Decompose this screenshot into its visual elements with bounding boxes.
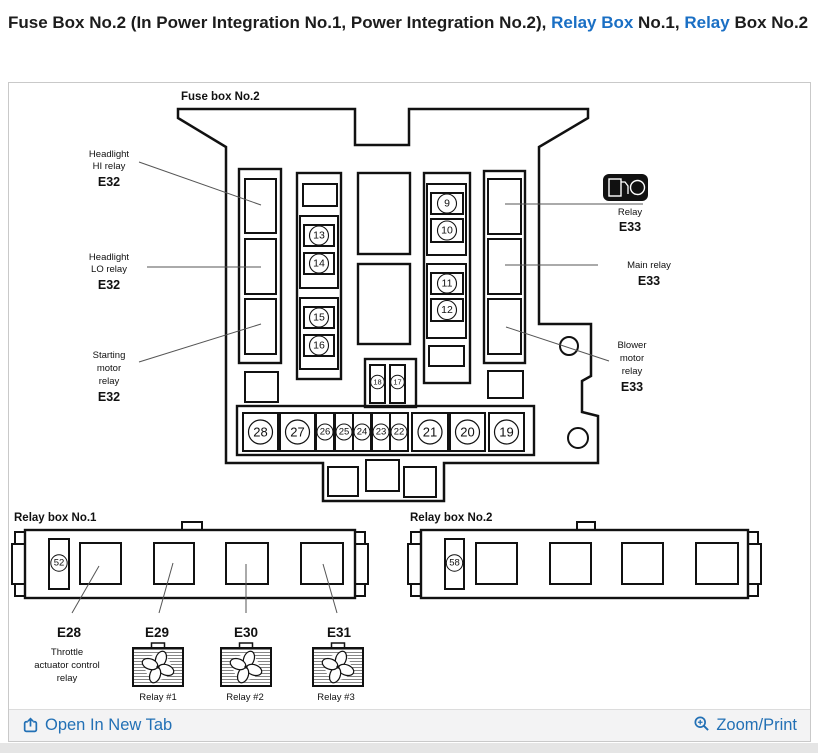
label-fuel-pump-relay: Relay E33	[618, 207, 643, 234]
relaybox-no2: Relay box No.2 58	[408, 512, 761, 598]
fuse-column-13-16: 13 14 15 16	[297, 173, 341, 379]
label-line: relay	[622, 366, 643, 377]
fuse-number: 10	[441, 225, 453, 237]
label-line: Headlight	[89, 252, 129, 263]
fuse-number: 19	[499, 425, 513, 440]
relay-code: E32	[98, 175, 120, 189]
slot	[488, 371, 523, 398]
fuse-number: 25	[339, 427, 350, 438]
open-in-new-tab-label: Open In New Tab	[45, 716, 172, 735]
label-line: motor	[620, 353, 644, 364]
relay-slot	[550, 543, 591, 584]
pointer-line	[323, 564, 337, 613]
fuse-number: 20	[460, 425, 474, 440]
label-main-relay: Main relay E33	[627, 260, 671, 288]
starting-motor-relay-slot	[245, 299, 276, 354]
open-in-new-tab-link[interactable]: Open In New Tab	[22, 716, 172, 735]
connector-block	[358, 264, 410, 344]
label-line: Main relay	[627, 260, 671, 271]
fuse-number: 18	[373, 378, 381, 387]
fuse-group	[300, 298, 338, 369]
fan-caption: Relay #1	[139, 692, 177, 703]
e32-relay-column	[239, 169, 281, 402]
fuel-pump-park-relay-icon: F P	[603, 174, 648, 201]
label-line: actuator control	[34, 660, 99, 671]
slot	[303, 184, 337, 206]
fuse-number: 17	[393, 378, 401, 387]
relay-column-frame	[484, 171, 525, 363]
label-blower-motor-relay: Blower motor relay E33	[617, 340, 646, 394]
title-text-1: Fuse Box No.2 (In Power Integration No.1…	[8, 13, 551, 32]
e33-relay-column	[484, 171, 525, 398]
relay-code: E33	[621, 380, 643, 394]
label-line: Starting	[93, 350, 126, 361]
bottom-fuse-row: 28 27 26 25 24 23 22 21 20	[237, 406, 534, 455]
mounting-hole	[568, 428, 588, 448]
connector-block	[408, 544, 421, 584]
relaybox-body	[25, 530, 355, 598]
relaybox-no2-label: Relay box No.2	[410, 512, 492, 524]
fuse-number: 12	[441, 304, 453, 316]
radiator-fan-icon	[313, 643, 363, 686]
radiator-fan-icon	[221, 643, 271, 686]
label-line: LO relay	[91, 264, 127, 275]
tab	[182, 522, 202, 530]
label-e29-fan-relay-1: E29 Relay #1	[133, 625, 183, 703]
page-title: Fuse Box No.2 (In Power Integration No.1…	[8, 12, 814, 33]
headlight-hi-relay-slot	[245, 179, 276, 233]
footer-bar: Open In New Tab Zoom/Print	[9, 709, 810, 741]
label-line: Relay	[618, 207, 643, 218]
relay-slot	[476, 543, 517, 584]
fuse-number: 22	[394, 427, 405, 438]
relay-slot	[622, 543, 663, 584]
relay-code: E33	[619, 220, 641, 234]
relay-code: E31	[327, 625, 352, 640]
relay-slot	[226, 543, 268, 584]
relaybox-body	[421, 530, 748, 598]
connector-tab	[355, 532, 365, 544]
blower-motor-relay-slot	[488, 299, 521, 354]
fuse-number: 15	[313, 312, 325, 324]
bottom-protrusion-slots	[328, 460, 436, 497]
connector-tab	[411, 584, 421, 596]
fan-caption: Relay #2	[226, 692, 264, 703]
fuse-relay-diagram: Fuse box No.2 13 14	[9, 83, 810, 709]
connector-block	[358, 173, 410, 254]
fuse-block-18-17: 18 17	[365, 359, 416, 407]
icon-letter-p: P	[634, 183, 640, 193]
slot	[429, 346, 464, 366]
fusebox-no2: Fuse box No.2 13 14	[89, 91, 671, 501]
zoom-plus-icon	[693, 715, 710, 732]
fuse-number: 26	[320, 427, 331, 438]
relay-code: E32	[98, 278, 120, 292]
main-relay-slot	[488, 239, 521, 294]
slot	[404, 467, 436, 497]
label-e30-fan-relay-2: E30 Relay #2	[221, 625, 271, 703]
fuse-number: 52	[54, 558, 65, 569]
fuel-pump-relay-slot	[488, 179, 521, 234]
connector-block	[355, 544, 368, 584]
fuse-number: 23	[376, 427, 387, 438]
connector-block	[748, 544, 761, 584]
connector-tab	[355, 584, 365, 596]
fuse-number: 27	[290, 425, 304, 440]
label-headlight-lo-relay: Headlight LO relay E32	[89, 252, 129, 292]
label-e31-fan-relay-3: E31 Relay #3	[313, 625, 363, 703]
connector-tab	[748, 532, 758, 544]
relaybox-no1-label: Relay box No.1	[14, 512, 97, 524]
title-link-relay[interactable]: Relay	[684, 13, 729, 32]
fusebox-no2-label: Fuse box No.2	[181, 91, 260, 103]
relay-code: E33	[638, 274, 660, 288]
fuse-number: 58	[449, 558, 460, 569]
slot	[328, 467, 358, 496]
label-line: HI relay	[93, 161, 126, 172]
label-line: relay	[99, 376, 120, 387]
relay-code: E29	[145, 625, 169, 640]
zoom-print-label: Zoom/Print	[716, 716, 797, 735]
title-text-3: Box No.2	[730, 13, 808, 32]
relay-slot	[301, 543, 343, 584]
pointer-line	[159, 563, 173, 613]
radiator-fan-icon	[133, 643, 183, 686]
connector-tab	[411, 532, 421, 544]
zoom-print-link[interactable]: Zoom/Print	[693, 716, 797, 735]
fan-caption: Relay #3	[317, 692, 355, 703]
fuse-number: 16	[313, 340, 325, 352]
relay-slot	[696, 543, 738, 584]
label-line: relay	[57, 673, 78, 684]
fuse-number: 21	[423, 425, 437, 440]
connector-tab	[15, 584, 25, 596]
connector-block	[12, 544, 25, 584]
label-line: motor	[97, 363, 121, 374]
fuse-number: 28	[253, 425, 267, 440]
fuse-number: 9	[444, 198, 450, 210]
label-line: Blower	[617, 340, 646, 351]
relay-code: E30	[234, 625, 258, 640]
label-e28-throttle-relay: E28 Throttle actuator control relay	[34, 625, 99, 684]
diagram-panel: Fuse box No.2 13 14	[8, 82, 811, 742]
tab	[577, 522, 595, 530]
open-in-new-tab-icon	[22, 717, 39, 734]
relay-slot	[154, 543, 194, 584]
relay-slot	[80, 543, 121, 584]
fuse-number: 14	[313, 258, 325, 270]
relaybox-no1: Relay box No.1 52 E28 Throttle actuator …	[12, 512, 368, 703]
label-line: Throttle	[51, 647, 83, 658]
slot	[366, 460, 399, 491]
label-line: Headlight	[89, 149, 129, 160]
fuse-number: 11	[442, 278, 453, 290]
fuse-column-9-12: 9 10 11 12	[424, 173, 470, 383]
title-link-relay-box[interactable]: Relay Box	[551, 13, 633, 32]
page-bottom-strip	[0, 743, 818, 753]
icon-letter-f: F	[611, 185, 617, 195]
fuse-number: 13	[313, 230, 325, 242]
slot	[245, 372, 278, 402]
pointer-line	[72, 566, 99, 613]
connector-tab	[15, 532, 25, 544]
connector-tab	[748, 584, 758, 596]
label-starting-motor-relay: Starting motor relay E32	[93, 350, 126, 404]
relay-code: E28	[57, 625, 82, 640]
label-headlight-hi-relay: Headlight HI relay E32	[89, 149, 129, 189]
pointer-line	[139, 324, 261, 362]
fuse-number: 24	[357, 427, 368, 438]
title-text-2: No.1,	[633, 13, 684, 32]
relay-code: E32	[98, 390, 120, 404]
